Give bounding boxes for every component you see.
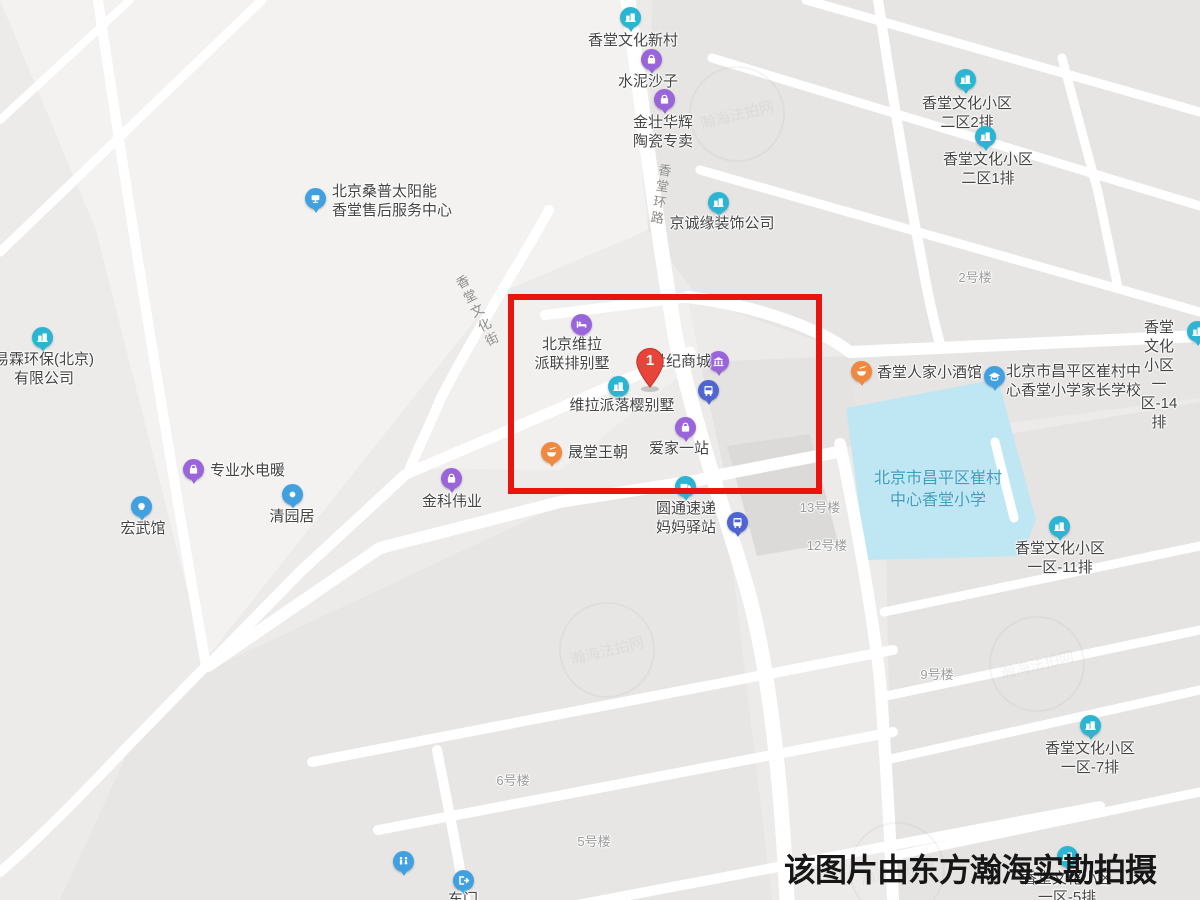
aijia-yizhan-pin[interactable] — [675, 417, 696, 438]
jinke-weiye-pin[interactable] — [441, 468, 462, 489]
weila-luoying-bieshu-label[interactable]: 维拉派落樱别墅 — [569, 396, 674, 415]
dongmen-label[interactable]: 东门 — [448, 890, 478, 900]
jingchengyuan-zhuangshi-label[interactable]: 京诚缘装饰公司 — [669, 214, 774, 233]
weila-lianpai-bieshu-label[interactable]: 北京维拉 派联排别墅 — [534, 335, 609, 373]
yiqu-7pai-label[interactable]: 香堂文化小区 一区-7排 — [1045, 739, 1135, 777]
louhao-9-label: 9号楼 — [920, 666, 953, 683]
jingchengyuan-zhuangshi-pin[interactable] — [708, 192, 729, 213]
building-icon — [958, 72, 973, 87]
sangpu-service-center-pin[interactable] — [305, 188, 326, 209]
truck-icon — [678, 479, 693, 494]
xiangtang-wenhua-xincun-pin[interactable] — [620, 7, 641, 28]
map-screenshot: 瀚海法拍网瀚海法拍网瀚海法拍网瀚海法拍网 香堂文化新村水泥沙子金壮华辉 陶瓷专卖… — [0, 0, 1200, 900]
dongmen-pin[interactable] — [453, 870, 474, 891]
sangpu-service-center-label[interactable]: 北京桑普太阳能 香堂售后服务中心 — [332, 182, 452, 220]
school-icon — [987, 369, 1002, 384]
building-icon — [35, 330, 50, 345]
wc-icon — [396, 854, 411, 869]
exit-icon — [456, 873, 471, 888]
building-icon — [611, 379, 626, 394]
qingyuanju-label[interactable]: 清园居 — [269, 507, 314, 526]
bus-stop-north-pin[interactable] — [698, 380, 719, 401]
bus-icon — [701, 383, 716, 398]
louhao-13-label: 13号楼 — [800, 499, 840, 516]
qingyuanju-pin[interactable] — [282, 484, 303, 505]
erqu-2pai-label[interactable]: 香堂文化小区 二区2排 — [922, 94, 1012, 132]
marker-number: 1 — [636, 352, 664, 369]
shop-icon — [711, 354, 726, 369]
cuicun-parent-school-label[interactable]: 北京市昌平区崔村中 心香堂小学家长学校 — [1006, 362, 1141, 400]
hongwuguan-pin[interactable] — [131, 496, 152, 517]
yiqu-14pai-label[interactable]: 香堂文化小区 一区-14排 — [1139, 318, 1180, 432]
dot-icon — [285, 487, 300, 502]
yiqu-11pai-pin[interactable] — [1049, 516, 1070, 537]
listing-marker-pin[interactable]: 1 — [636, 348, 664, 388]
building-icon — [1190, 324, 1200, 339]
poi-layer: 香堂文化新村水泥沙子金壮华辉 陶瓷专卖北京桑普太阳能 香堂售后服务中心京诚缘装饰… — [0, 0, 1200, 900]
building-icon — [1052, 519, 1067, 534]
cuicun-parent-school-pin[interactable] — [984, 366, 1005, 387]
yiqu-14pai-pin[interactable] — [1187, 321, 1200, 342]
louhao-2-label: 2号楼 — [958, 269, 991, 286]
jinzhuang-huahui-taoci-label[interactable]: 金壮华辉 陶瓷专卖 — [633, 113, 693, 151]
louhao-5-label: 5号楼 — [577, 833, 610, 850]
shengtang-wangchao-pin[interactable] — [541, 442, 562, 463]
louhao-12-label: 12号楼 — [807, 537, 847, 554]
shiji-shangcheng-pin[interactable] — [708, 351, 729, 372]
bed-icon — [574, 317, 589, 332]
fist-icon — [134, 499, 149, 514]
weila-luoying-bieshu-pin[interactable] — [608, 376, 629, 397]
xiangtang-renjia-jiuguan-label[interactable]: 香堂人家小酒馆 — [877, 363, 982, 382]
restroom-pin[interactable] — [393, 851, 414, 872]
building-icon — [711, 195, 726, 210]
erqu-1pai-pin[interactable] — [975, 126, 996, 147]
bag-icon — [678, 420, 693, 435]
bus-icon — [730, 515, 745, 530]
yiqu-11pai-label[interactable]: 香堂文化小区 一区-11排 — [1015, 539, 1105, 577]
shuini-shazi-label[interactable]: 水泥沙子 — [618, 72, 678, 91]
photo-caption: 该图片由东方瀚海实勘拍摄 — [784, 845, 1156, 891]
zhuanye-shuidiannuan-label[interactable]: 专业水电暖 — [210, 461, 285, 480]
building-icon — [623, 10, 638, 25]
erqu-1pai-label[interactable]: 香堂文化小区 二区1排 — [943, 150, 1033, 188]
erqu-2pai-pin[interactable] — [955, 69, 976, 90]
xiangtang-renjia-jiuguan-pin[interactable] — [851, 361, 872, 382]
solar-icon — [308, 191, 323, 206]
louhao-6-label: 6号楼 — [496, 772, 529, 789]
bag-icon — [186, 462, 201, 477]
xiangtang-wenhua-xincun-label[interactable]: 香堂文化新村 — [588, 31, 678, 50]
aijia-yizhan-label[interactable]: 爱家一站 — [649, 439, 709, 458]
yilin-huanbao-label[interactable]: 易霖环保(北京) 有限公司 — [0, 350, 94, 388]
weila-lianpai-bieshu-pin[interactable] — [571, 314, 592, 335]
yilin-huanbao-pin[interactable] — [32, 327, 53, 348]
bag-icon — [644, 52, 659, 67]
zhuanye-shuidiannuan-pin[interactable] — [183, 459, 204, 480]
yuantong-mama-yizhan-label[interactable]: 圆通速递 妈妈驿站 — [656, 499, 716, 537]
cuicun-xiangtang-primary-school-label: 北京市昌平区崔村 中心香堂小学 — [874, 468, 1002, 512]
bag-icon — [444, 471, 459, 486]
xiangtang-wenhuajie-road-label: 香堂文化街 — [450, 272, 503, 352]
building-icon — [1083, 718, 1098, 733]
yiqu-7pai-pin[interactable] — [1080, 715, 1101, 736]
building-icon — [978, 129, 993, 144]
shuini-shazi-pin[interactable] — [641, 49, 662, 70]
hongwuguan-label[interactable]: 宏武馆 — [120, 519, 165, 538]
jinke-weiye-label[interactable]: 金科伟业 — [422, 492, 482, 511]
food-icon — [854, 364, 869, 379]
bag-icon — [657, 92, 672, 107]
jinzhuang-huahui-taoci-pin[interactable] — [654, 89, 675, 110]
shengtang-wangchao-label[interactable]: 晟堂王朝 — [568, 443, 628, 462]
bus-stop-south-pin[interactable] — [727, 512, 748, 533]
yuantong-mama-yizhan-pin[interactable] — [675, 476, 696, 497]
food-icon — [544, 445, 559, 460]
